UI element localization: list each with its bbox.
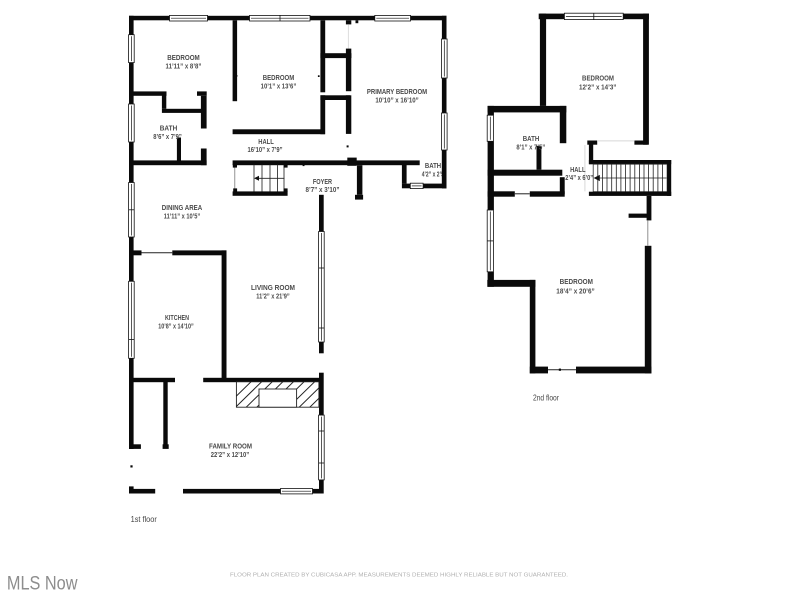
svg-text:MLS Now: MLS Now xyxy=(7,573,78,594)
svg-text:8’1” x 7’5”: 8’1” x 7’5” xyxy=(516,145,545,152)
svg-text:HALL: HALL xyxy=(570,165,586,174)
svg-text:10’1” x 13’6”: 10’1” x 13’6” xyxy=(261,84,297,91)
svg-text:BATH: BATH xyxy=(425,161,441,170)
svg-text:BATH: BATH xyxy=(160,124,178,133)
svg-text:BEDROOM: BEDROOM xyxy=(582,74,614,83)
svg-text:16’10” x 7’9”: 16’10” x 7’9” xyxy=(248,147,283,154)
svg-text:11’2” x 21’9”: 11’2” x 21’9” xyxy=(256,294,290,301)
svg-text:1st floor: 1st floor xyxy=(131,515,157,524)
svg-text:22’2” x 12’10”: 22’2” x 12’10” xyxy=(211,452,250,459)
svg-text:8’7” x 3’10”: 8’7” x 3’10” xyxy=(306,187,340,194)
svg-text:18’4” x 20’6”: 18’4” x 20’6” xyxy=(556,289,594,296)
svg-text:DINING AREA: DINING AREA xyxy=(162,203,203,212)
svg-text:8’6” x 7’9”: 8’6” x 7’9” xyxy=(153,134,182,141)
svg-text:11’11” x 8’8”: 11’11” x 8’8” xyxy=(166,64,202,71)
svg-text:BEDROOM: BEDROOM xyxy=(560,277,593,286)
svg-text:LIVING ROOM: LIVING ROOM xyxy=(251,283,295,292)
svg-text:2’4” x 6’0”: 2’4” x 6’0” xyxy=(565,175,593,182)
svg-text:FAMILY ROOM: FAMILY ROOM xyxy=(209,442,252,451)
svg-text:2nd floor: 2nd floor xyxy=(533,394,559,403)
svg-text:BEDROOM: BEDROOM xyxy=(167,53,200,62)
svg-text:11’11” x 10’5”: 11’11” x 10’5” xyxy=(164,214,201,221)
svg-text:10’10” x 16’10”: 10’10” x 16’10” xyxy=(375,98,418,105)
svg-text:KITCHEN: KITCHEN xyxy=(165,313,189,322)
svg-text:BATH: BATH xyxy=(523,134,540,143)
svg-text:PRIMARY BEDROOM: PRIMARY BEDROOM xyxy=(367,87,427,96)
svg-text:10’8” x 14’10”: 10’8” x 14’10” xyxy=(158,324,194,331)
svg-text:FOYER: FOYER xyxy=(313,177,333,186)
svg-text:FLOOR PLAN CREATED BY CUBICASA: FLOOR PLAN CREATED BY CUBICASA APP. MEAS… xyxy=(230,573,568,579)
svg-text:HALL: HALL xyxy=(258,137,274,146)
svg-text:12’2” x 14’3”: 12’2” x 14’3” xyxy=(579,85,616,92)
svg-text:BEDROOM: BEDROOM xyxy=(263,73,295,82)
